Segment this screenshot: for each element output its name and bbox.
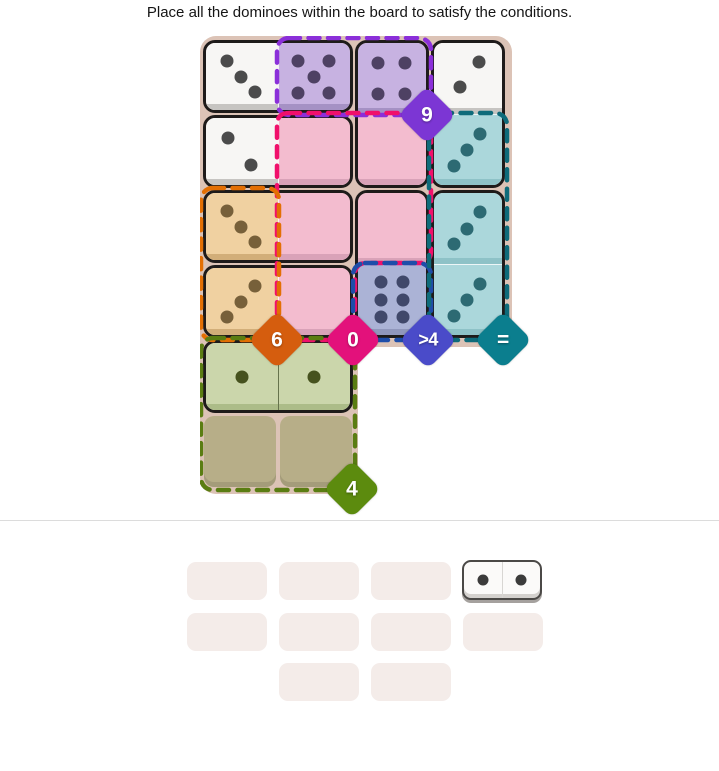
condition-badge-label: =	[497, 328, 509, 352]
pip	[235, 71, 248, 84]
pip	[453, 80, 466, 93]
tray-slot[interactable]	[187, 613, 267, 651]
domino-0-6[interactable]	[355, 190, 429, 338]
pip	[372, 56, 385, 69]
pip	[308, 370, 321, 383]
pip	[398, 56, 411, 69]
pip	[396, 311, 409, 324]
pip	[398, 87, 411, 100]
condition-badge-label: >4	[418, 330, 438, 351]
condition-badge-label: 0	[347, 328, 358, 352]
domino-half-0	[358, 193, 426, 264]
condition-badge-label: 4	[346, 477, 357, 501]
pip	[461, 294, 474, 307]
pip	[248, 235, 261, 248]
pip	[516, 575, 527, 586]
pip	[477, 575, 488, 586]
tray-domino-half-1	[502, 562, 541, 598]
domino-3-3[interactable]	[431, 190, 505, 338]
pip	[375, 293, 388, 306]
pip	[474, 127, 487, 140]
page-root: Place all the dominoes within the board …	[0, 0, 719, 771]
domino-half-3	[206, 193, 278, 260]
pip	[372, 87, 385, 100]
tray-domino-half-1	[464, 562, 502, 598]
pip	[461, 222, 474, 235]
pip	[220, 205, 233, 218]
tray-slot[interactable]	[279, 562, 359, 600]
pip	[472, 56, 485, 69]
pip	[235, 296, 248, 309]
domino-half-0	[278, 193, 351, 260]
tray-slot[interactable]	[279, 663, 359, 701]
pip	[461, 144, 474, 157]
condition-badge-label: 6	[271, 328, 282, 352]
pip	[291, 55, 304, 68]
domino-half-5	[278, 43, 351, 110]
tray-slot[interactable]	[371, 562, 451, 600]
domino-2-0[interactable]	[203, 115, 353, 188]
section-divider	[0, 520, 719, 521]
tray-slot[interactable]	[371, 613, 451, 651]
pip	[375, 276, 388, 289]
pip	[323, 87, 336, 100]
pip	[248, 280, 261, 293]
domino-board: 906>4=4	[200, 36, 512, 494]
domino-half-3	[434, 193, 502, 264]
pip	[235, 221, 248, 234]
puzzle-instructions: Place all the dominoes within the board …	[0, 4, 719, 21]
domino-half-0	[278, 118, 351, 185]
pip	[447, 159, 460, 172]
tray-slot[interactable]	[279, 613, 359, 651]
pip	[474, 206, 487, 219]
pip	[235, 370, 248, 383]
pip	[307, 71, 320, 84]
pip	[396, 276, 409, 289]
pip	[222, 132, 235, 145]
pip	[248, 85, 261, 98]
tray-domino-1-1[interactable]	[462, 560, 542, 600]
pip	[323, 55, 336, 68]
pip	[220, 55, 233, 68]
pip	[291, 87, 304, 100]
domino-3-0a[interactable]	[203, 190, 353, 263]
domino-3-5[interactable]	[203, 40, 353, 113]
pip	[245, 158, 258, 171]
tray-slot[interactable]	[463, 613, 543, 651]
domino-half-3	[206, 43, 278, 110]
pip	[474, 277, 487, 290]
domino-half-2	[206, 118, 278, 185]
pip	[447, 238, 460, 251]
pip	[375, 311, 388, 324]
pip	[396, 293, 409, 306]
pip	[220, 310, 233, 323]
empty-cell-r5c0[interactable]	[204, 416, 276, 487]
pip	[447, 309, 460, 322]
condition-badge-label: 9	[421, 103, 432, 127]
tray-slot[interactable]	[187, 562, 267, 600]
tray-slot[interactable]	[371, 663, 451, 701]
